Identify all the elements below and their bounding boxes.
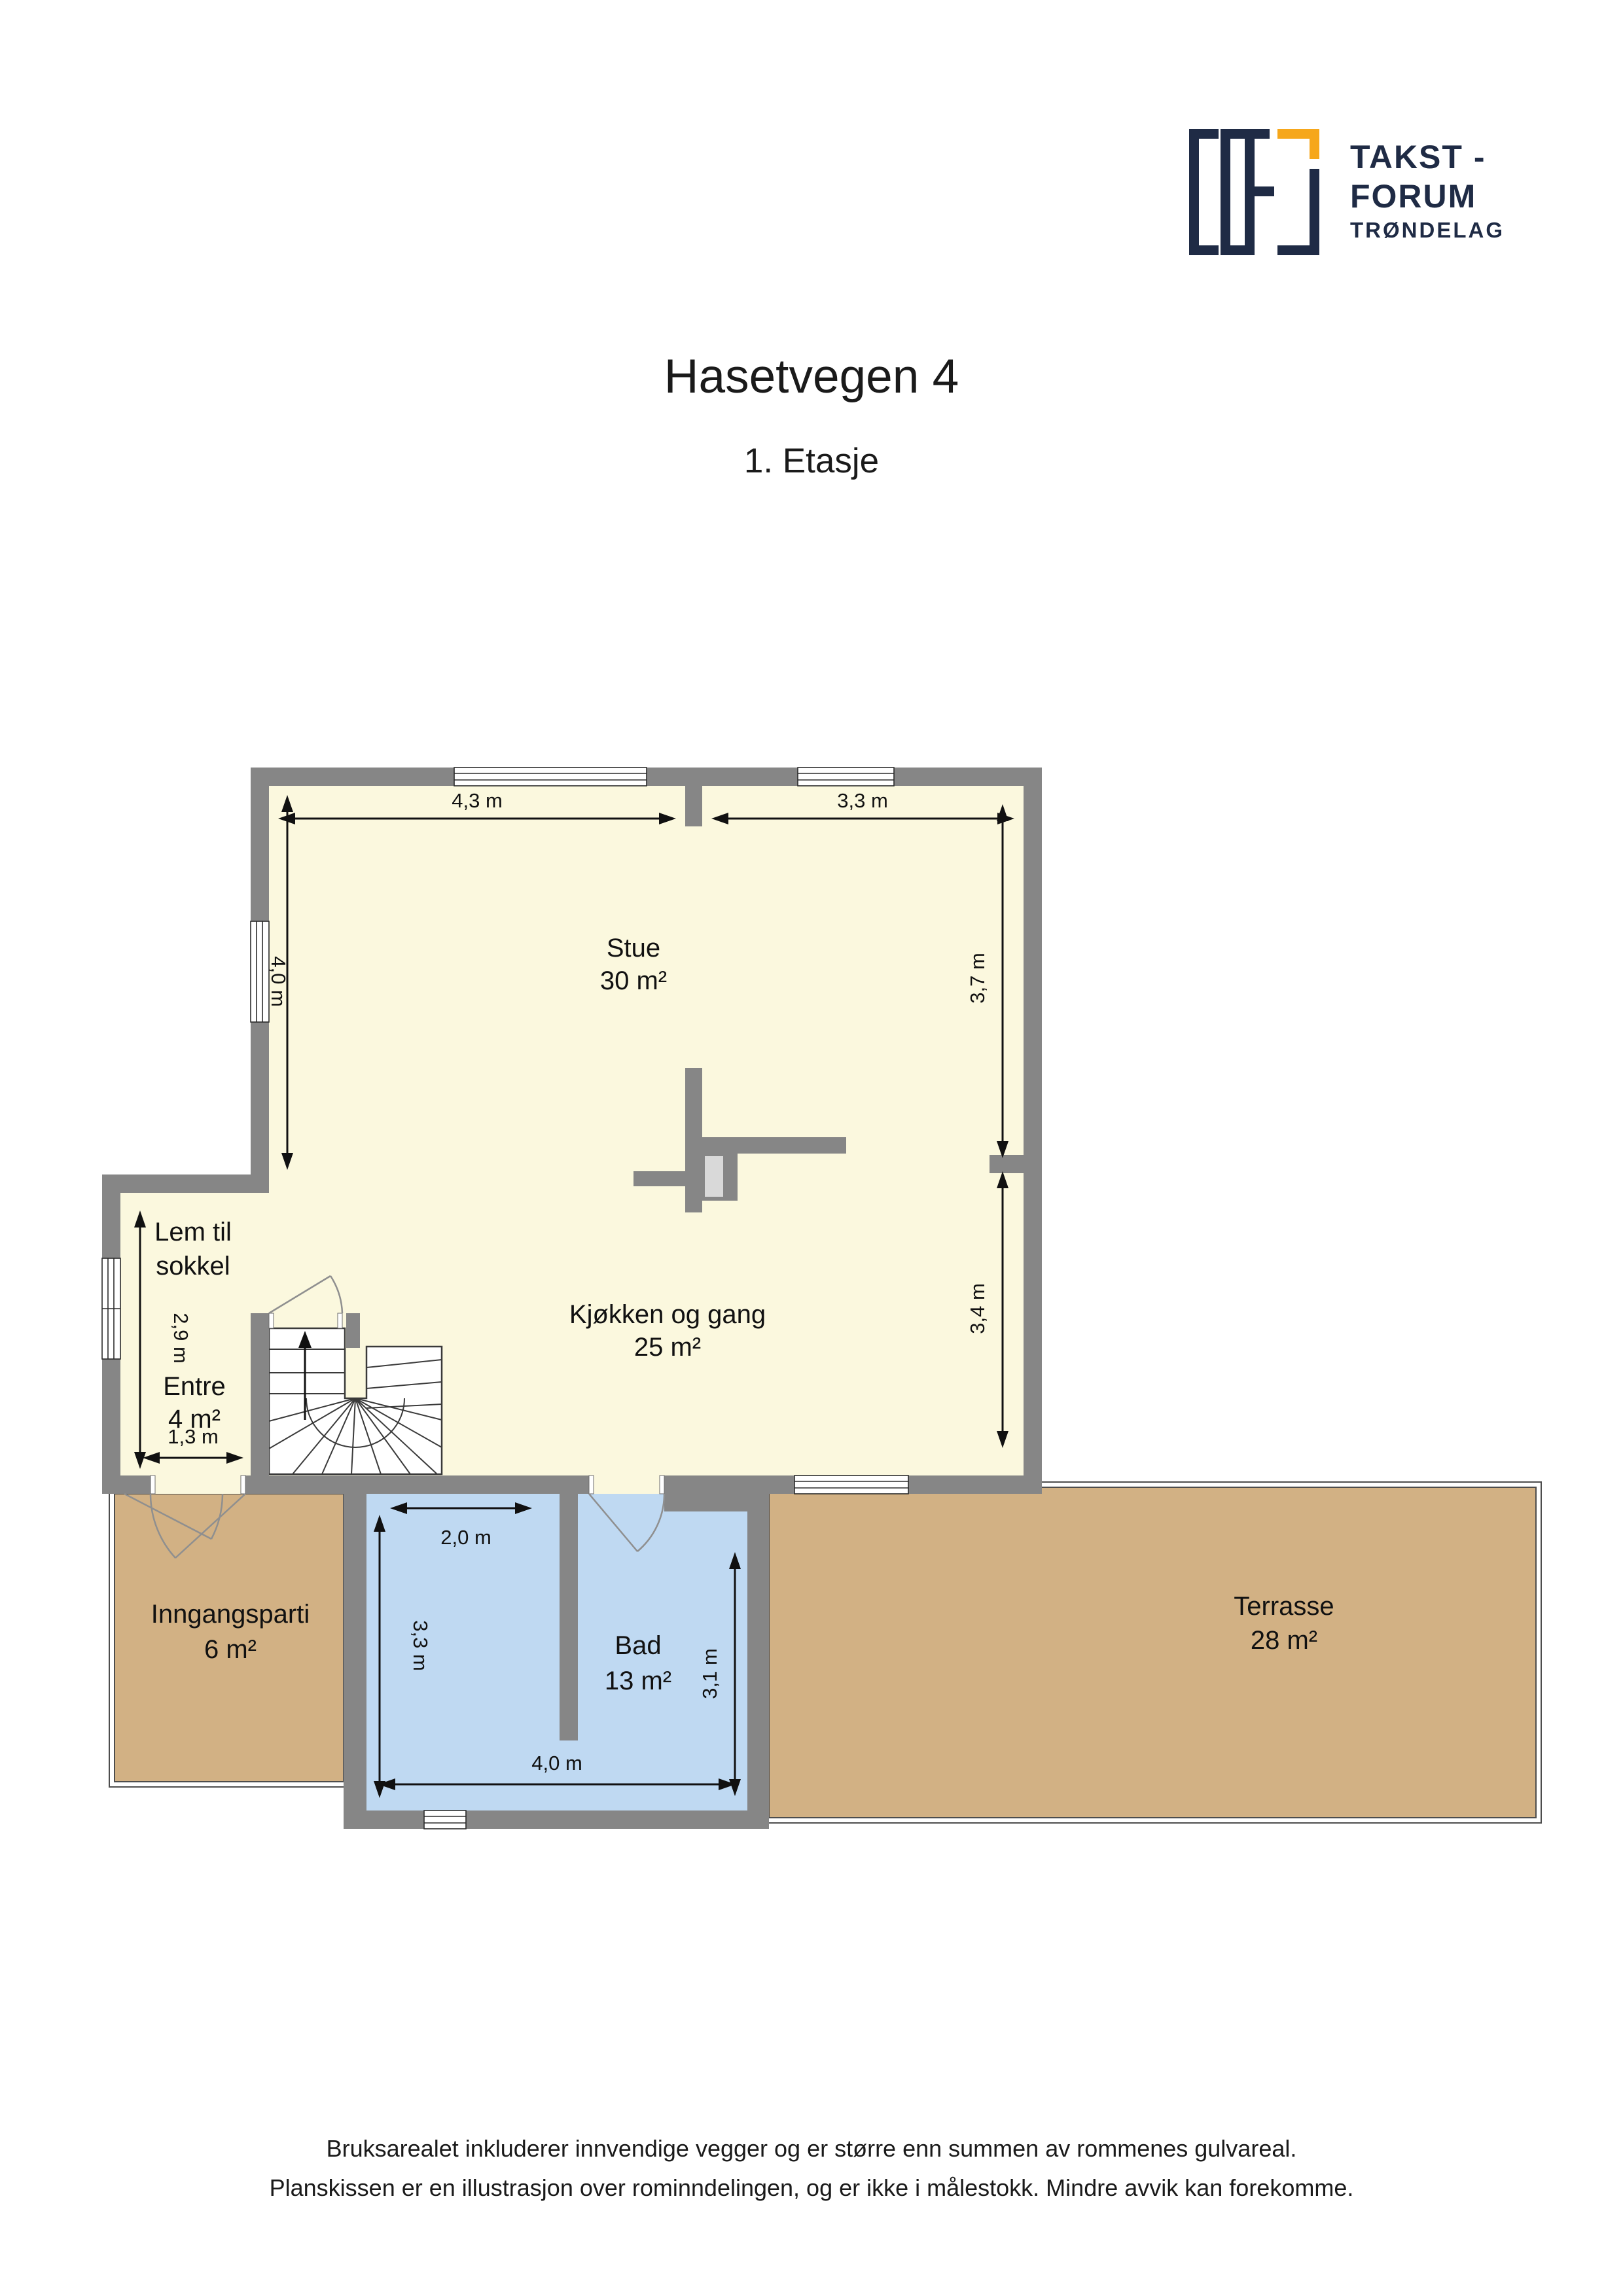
logo-text-line1: TAKST - [1350,139,1486,175]
logo-text-line3: TRØNDELAG [1350,218,1505,242]
logo-mark-icon [1189,129,1319,255]
window-kjokken-south [794,1475,908,1494]
wall-segment [647,768,798,786]
window-kjokken-top [798,768,894,786]
window-stue-left [251,921,269,1022]
wall-segment [664,1475,794,1494]
svg-text:3,7 m: 3,7 m [966,953,989,1004]
label-bad-area: 13 m² [605,1667,671,1695]
wall-segment [344,1494,366,1829]
svg-text:2,0 m: 2,0 m [440,1526,491,1549]
wall-segment [251,1475,589,1494]
takstforum-logo: TAKST - FORUM TRØNDELAG [1189,129,1505,255]
label-stue-area: 30 m² [600,966,667,995]
window-bad-south [424,1810,466,1829]
chimney-flue [705,1156,723,1197]
wall-segment [245,1475,269,1494]
svg-text:3,4 m: 3,4 m [966,1283,989,1334]
label-inngangsparti-area: 6 m² [204,1635,257,1664]
wall-stub-top [685,786,702,826]
wall-segment [251,768,269,921]
wall-chimney [702,1137,846,1154]
floor-plan-page: TAKST - FORUM TRØNDELAG Hasetvegen 4 1. … [0,0,1623,2296]
label-kjokken: Kjøkken og gang [569,1300,766,1329]
label-lem-til: Lem til [154,1218,232,1246]
wall-stair-divider [251,1313,269,1475]
floor-plan-canvas: TAKST - FORUM TRØNDELAG Hasetvegen 4 1. … [0,0,1623,2296]
wall-stair-newel [346,1313,360,1348]
wall-segment [1024,768,1042,1494]
terrasse-floor [769,1487,1536,1818]
svg-text:3,1 m: 3,1 m [698,1648,721,1699]
label-terrasse: Terrasse [1234,1592,1334,1621]
footer-line2: Planskissen er en illustrasjon over romi… [270,2174,1354,2201]
page-title: Hasetvegen 4 [664,350,959,403]
svg-text:4,0 m: 4,0 m [531,1752,582,1775]
label-terrasse-area: 28 m² [1251,1626,1317,1655]
label-entre-area: 4 m² [168,1405,221,1434]
room-terrasse [764,1482,1541,1823]
label-stue: Stue [607,934,660,963]
wall-segment [102,1475,151,1494]
wall-segment [251,768,454,786]
page-subtitle: 1. Etasje [744,442,879,480]
wall-chimney [685,1068,702,1212]
wall-segment [664,1494,747,1511]
label-inngangsparti: Inngangsparti [151,1600,310,1629]
wall-segment [344,1810,424,1829]
wall-segment [102,1359,120,1494]
wall-bad-partition [560,1494,578,1740]
label-bad: Bad [615,1631,661,1660]
wall-segment [908,1475,1042,1494]
wall-segment [747,1494,769,1829]
label-sokkel: sokkel [156,1252,230,1280]
wall-segment [251,1021,269,1174]
wall-segment [466,1810,769,1829]
footer-line1: Bruksarealet inkluderer innvendige vegge… [327,2135,1297,2162]
label-kjokken-area: 25 m² [634,1333,701,1362]
wall-stub-right [990,1155,1024,1173]
wall-chimney [633,1171,685,1186]
svg-text:3,3 m: 3,3 m [409,1620,432,1671]
window-stue-top [454,768,647,786]
wall-segment [102,1174,269,1193]
wall-segment [102,1174,120,1258]
svg-text:2,9 m: 2,9 m [169,1313,192,1364]
window-entre-left [102,1258,120,1359]
svg-text:3,3 m: 3,3 m [837,789,888,812]
svg-text:4,3 m: 4,3 m [452,789,503,812]
logo-text-line2: FORUM [1350,178,1476,215]
wall-segment [894,768,1042,786]
svg-text:4,0 m: 4,0 m [267,956,290,1007]
label-entre: Entre [163,1372,226,1401]
